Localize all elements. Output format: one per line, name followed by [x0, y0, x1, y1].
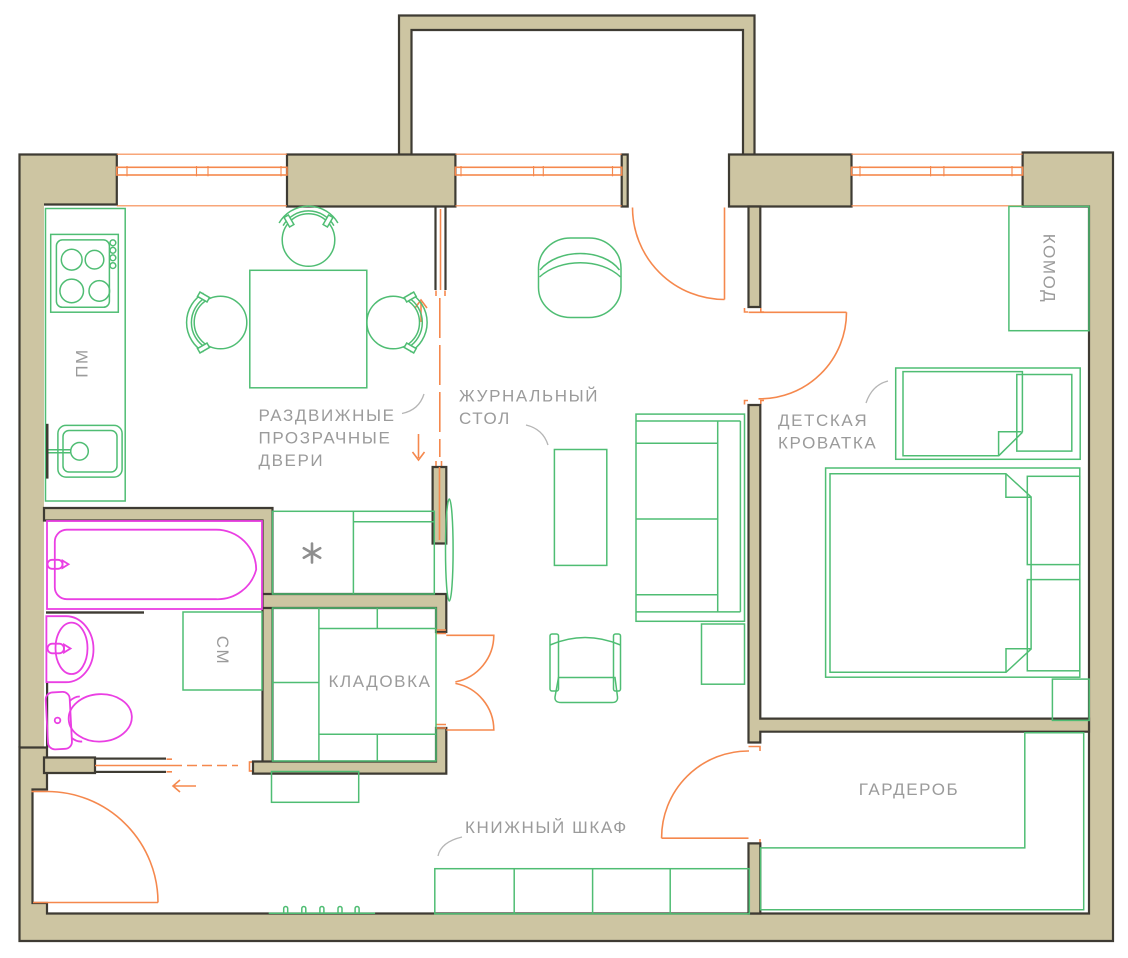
svg-text:ПМ: ПМ: [73, 348, 92, 378]
svg-text:СТОЛ: СТОЛ: [459, 409, 511, 428]
svg-text:ПРОЗРАЧНЫЕ: ПРОЗРАЧНЫЕ: [259, 429, 392, 448]
svg-text:СМ: СМ: [213, 636, 232, 665]
svg-text:КЛАДОВКА: КЛАДОВКА: [328, 672, 431, 691]
svg-text:ДЕТСКАЯ: ДЕТСКАЯ: [778, 411, 868, 430]
svg-text:КРОВАТКА: КРОВАТКА: [778, 434, 877, 453]
svg-text:КНИЖНЫЙ ШКАФ: КНИЖНЫЙ ШКАФ: [465, 818, 628, 837]
svg-text:ДВЕРИ: ДВЕРИ: [259, 451, 325, 470]
svg-text:КОМОД: КОМОД: [1040, 234, 1059, 303]
svg-text:ЖУРНАЛЬНЫЙ: ЖУРНАЛЬНЫЙ: [459, 387, 599, 406]
svg-text:ГАРДЕРОБ: ГАРДЕРОБ: [859, 780, 960, 799]
svg-text:РАЗДВИЖНЫЕ: РАЗДВИЖНЫЕ: [259, 406, 396, 425]
